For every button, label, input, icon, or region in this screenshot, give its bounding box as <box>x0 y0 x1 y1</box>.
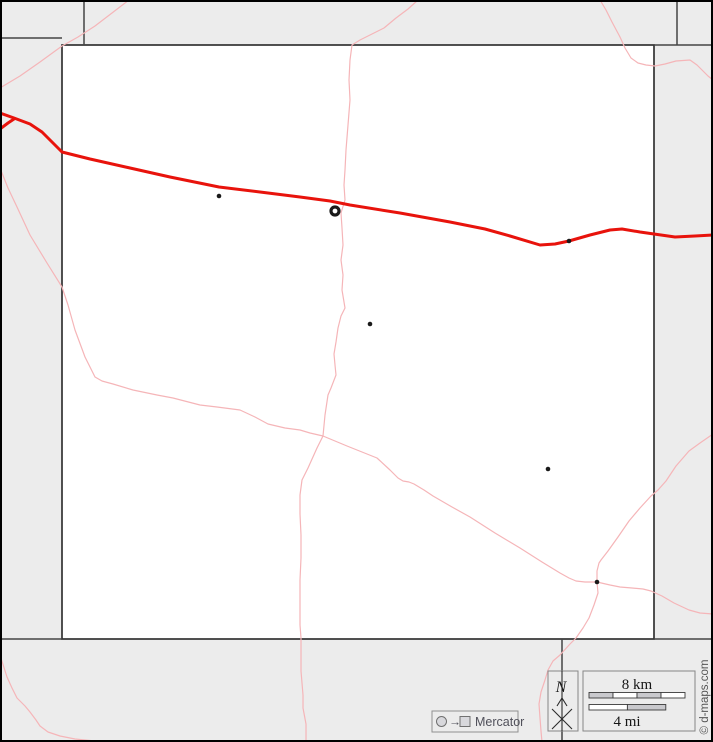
scale-bar-mi <box>589 705 666 711</box>
county-map-svg: N 8 km <box>0 0 713 742</box>
credit-text: © d-maps.com <box>699 660 711 735</box>
county-seat-marker <box>331 207 339 215</box>
town-marker <box>217 194 222 199</box>
scale-bar-km-segment <box>661 693 685 699</box>
scale-bar-km-segment <box>613 693 637 699</box>
scale-bar-mi-segment <box>627 705 665 711</box>
town-marker <box>595 580 600 585</box>
scale-km-label: 8 km <box>622 677 653 693</box>
scale-mi-label: 4 mi <box>613 714 640 730</box>
map-canvas: N 8 km <box>0 0 713 742</box>
north-label: N <box>555 679 568 696</box>
projection-arrow-icon: → <box>449 715 461 729</box>
flat-map-square-icon <box>460 717 470 727</box>
north-arrow-box: N <box>548 671 578 731</box>
scale-bar-km <box>589 693 685 699</box>
scale-bar-km-segment <box>637 693 661 699</box>
scale-bar-mi-segment <box>589 705 627 711</box>
town-marker <box>546 467 551 472</box>
scale-bar-km-segment <box>589 693 613 699</box>
globe-circle-icon <box>437 717 447 727</box>
town-marker <box>368 322 373 327</box>
projection-label: Mercator <box>475 715 524 729</box>
town-marker <box>567 239 572 244</box>
geography-layer <box>0 0 713 742</box>
projection-box: → Mercator <box>432 711 524 732</box>
county-shape <box>62 45 654 639</box>
scale-box: 8 km 4 mi <box>583 671 695 731</box>
